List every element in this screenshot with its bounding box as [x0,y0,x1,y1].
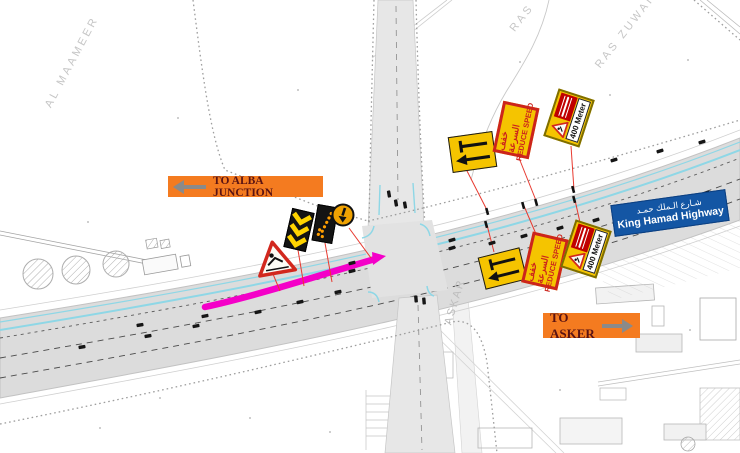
keep-left-sign [332,204,355,227]
left-arrow-icon [184,185,206,189]
roadworks-warning-sign [252,237,298,279]
vehicle-icon [656,148,664,153]
vehicle-icon [422,297,426,304]
lane-closed-sign [448,131,498,173]
boundary-lines [372,0,740,180]
vehicle-icon [610,157,618,162]
to-asker-banner: TO ASKER [543,313,640,338]
banner-label: TO ASKER [550,310,596,342]
left-plot-detail [0,231,191,289]
north-road [368,0,425,228]
right-arrow-icon [602,324,622,328]
tree-circle [23,259,53,289]
traffic-management-plan: AL MAAMEER RAS RAS ZUWAID ASKAR TO ALBA … [0,0,740,453]
lane-closed-icon [449,132,496,172]
vehicle-icon [414,295,418,302]
roadworks-triangle-icon [252,237,298,279]
to-alba-junction-banner: TO ALBA JUNCTION [168,176,323,197]
tree-circle [62,256,90,284]
vehicle-icon [698,139,706,144]
down-arrow-icon [334,206,353,225]
tree-circle [103,251,129,277]
banner-label: TO ALBA JUNCTION [213,175,318,199]
